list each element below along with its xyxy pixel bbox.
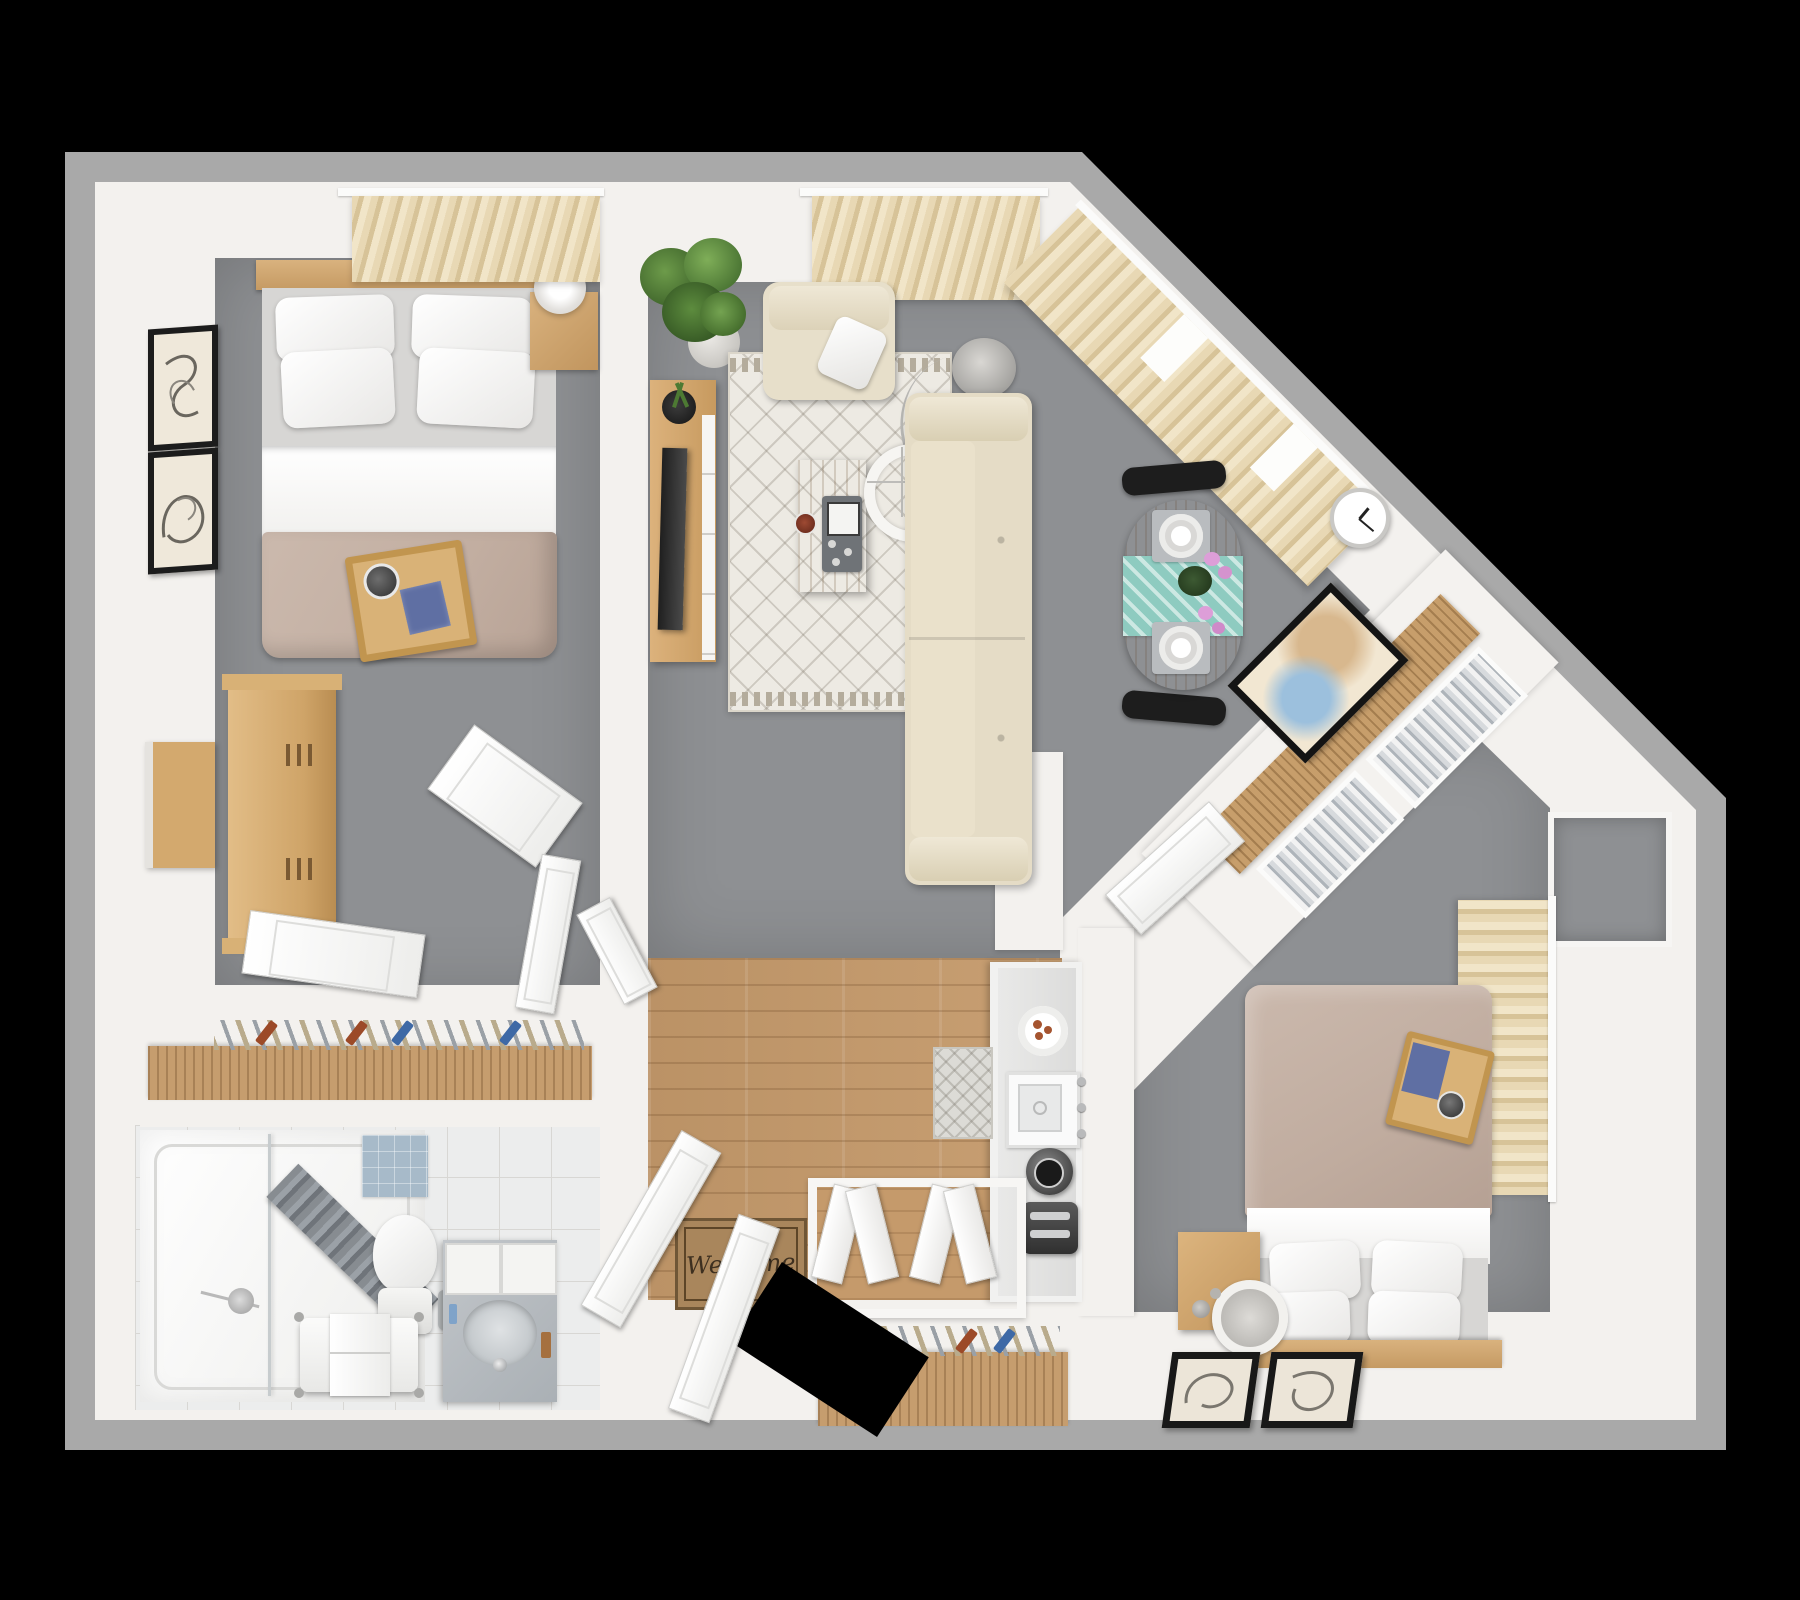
vanity-sink [463,1300,537,1366]
pillow [280,347,396,429]
game-board [827,502,860,536]
toothbrush-cup [449,1304,457,1324]
tv-console-drawers [702,415,715,660]
vanity-faucet [493,1358,507,1372]
arc-lamp-base [952,338,1016,398]
decor-sphere [1192,1300,1210,1318]
bedroom1-wall-art [148,325,218,452]
game-tray [822,496,862,572]
vanity-drawer [501,1243,557,1295]
plate [1159,514,1203,558]
sofa-armrest [909,837,1028,881]
plate-of-food [1018,1006,1068,1056]
armchair [763,282,895,400]
bedroom1-curtains [352,196,600,282]
pillow [416,347,536,429]
sofa [905,393,1032,885]
vanity [443,1240,557,1402]
blue-book [400,581,451,635]
wall-kitchen-bedroom2 [1078,928,1134,1316]
shower-head [228,1288,254,1314]
bedroom1-sheet [262,446,556,538]
vanity-drawer [445,1243,501,1295]
sink-drain [1033,1101,1047,1115]
sofa-seam [909,637,1025,640]
bedroom1-wall-desk [145,742,215,868]
curtain-rod [338,188,604,196]
plate [1159,626,1203,670]
dresser-handles [286,744,312,766]
bedroom2-ring-lamp [1212,1280,1288,1356]
glass-panel [268,1134,271,1396]
soap-bottle [541,1332,551,1358]
bath-mat [362,1135,428,1197]
kitchen-sink [1006,1072,1080,1148]
coffee-table [798,460,866,592]
dresser-top-lip [222,674,342,690]
bedroom1-breakfast-tray [344,539,477,662]
tv [658,448,688,631]
bedroom1-wall-art [148,448,218,575]
wall-clock [1330,488,1390,548]
place-setting [1152,510,1210,562]
bedroom1-closet-rod [148,1046,592,1100]
kettle [1026,1148,1073,1195]
coaster [794,512,817,535]
wall-closet-bathroom [140,1105,600,1127]
towel [330,1314,390,1396]
bedroom1-dresser [228,682,336,946]
blue-book [1401,1042,1450,1100]
dresser-handles [286,858,312,880]
toilet [373,1215,437,1293]
toaster [1022,1202,1078,1254]
curtain-rod [1548,896,1556,1202]
bath-bench [300,1318,418,1392]
place-setting [1152,622,1210,674]
floor-plan-scene: Welcome [0,0,1800,1600]
curtain-rod [800,188,1048,196]
pillow [1367,1290,1461,1347]
decor-sphere [1210,1288,1221,1299]
sofa-armrest [909,397,1028,441]
kitchen-runner-rug [933,1047,993,1139]
cup-icon [361,561,402,602]
bedroom2-floor-art [1261,1352,1364,1428]
console-plant [662,390,696,424]
bedroom2-window [1548,812,1672,947]
armchair-back [769,286,889,330]
wall-bedroom1-living [600,182,648,958]
bedroom2-floor-art [1162,1352,1261,1428]
